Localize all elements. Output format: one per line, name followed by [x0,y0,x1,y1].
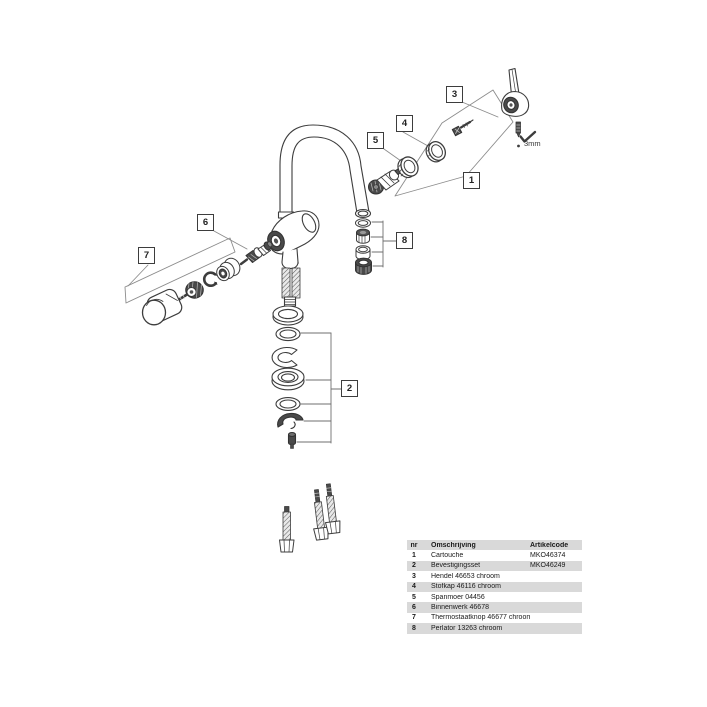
callout-3-label: 3 [452,89,457,100]
exploded-diagram [0,0,707,707]
handle-screw [452,120,473,136]
cell-description: Binnenwerk 46678 [421,604,530,611]
callout-1: 1 [463,172,480,189]
callout-2-label: 2 [347,383,352,394]
hose-left [280,507,295,553]
callout-3: 3 [446,86,463,103]
cell-nr: 6 [407,604,421,611]
table-row: 1 Cartouche MKO46374 [407,550,582,560]
cell-description: Thermostaatknop 46677 chroom [421,614,530,621]
mounting-parts [272,306,304,449]
handle-part [502,69,529,117]
parts-table: nr Omschrijving Artikelcode 1 Cartouche … [407,540,582,634]
aerator-parts [356,219,372,275]
set-screw [516,122,521,137]
parts-diagram-page: 1 2 3 4 5 6 7 8 3mm nr Omschrijving Arti… [0,0,707,707]
table-row: 8 Perlator 13263 chroom [407,623,582,633]
cell-nr: 3 [407,573,421,580]
callout-4: 4 [396,115,413,132]
cell-code: MKO46249 [530,562,582,569]
table-row: 3 Hendel 46653 chroom [407,571,582,581]
cell-description: Hendel 46653 chroom [421,573,530,580]
callout-2: 2 [341,380,358,397]
cell-description: Perlator 13263 chroom [421,625,530,632]
dust-cap-part [423,139,449,165]
callout-6-label: 6 [203,217,208,228]
table-row: 4 Stofkap 46116 chroom [407,582,582,592]
header-description: Omschrijving [421,542,530,549]
cell-nr: 5 [407,594,421,601]
bracket-part-8 [371,221,396,267]
cell-nr: 8 [407,625,421,632]
callout-8-label: 8 [402,235,407,246]
callout-5-label: 5 [373,135,378,146]
cell-nr: 4 [407,583,421,590]
clip-part [204,273,217,286]
knurled-nut-part [186,282,204,298]
callout-8: 8 [396,232,413,249]
table-row: 2 Bevestigingsset MKO46249 [407,561,582,571]
cell-description: Bevestigingsset [421,562,530,569]
cell-nr: 1 [407,552,421,559]
supply-hoses [280,483,342,552]
callout-7-label: 7 [144,250,149,261]
cell-description: Cartouche [421,552,530,559]
cell-nr: 2 [407,562,421,569]
faucet-body [265,125,371,310]
callout-7: 7 [138,247,155,264]
callout-5: 5 [367,132,384,149]
size-annotation: 3mm [524,139,541,148]
callout-6: 6 [197,214,214,231]
valve-part [241,241,273,264]
table-row: 7 Thermostaatknop 46677 chroom [407,613,582,623]
callout-1-label: 1 [469,175,474,186]
header-nr: nr [407,542,421,549]
bracket-part-2 [297,333,341,443]
header-code: Artikelcode [530,542,582,549]
table-header-row: nr Omschrijving Artikelcode [407,540,582,550]
table-row: 5 Spanmoer 04456 [407,592,582,602]
guide-lines [125,90,513,303]
cell-nr: 7 [407,614,421,621]
cell-description: Stofkap 46116 chroom [421,583,530,590]
callout-4-label: 4 [402,118,407,129]
cell-code: MKO46374 [530,552,582,559]
cell-description: Spanmoer 04456 [421,594,530,601]
table-row: 6 Binnenwerk 46678 [407,602,582,612]
